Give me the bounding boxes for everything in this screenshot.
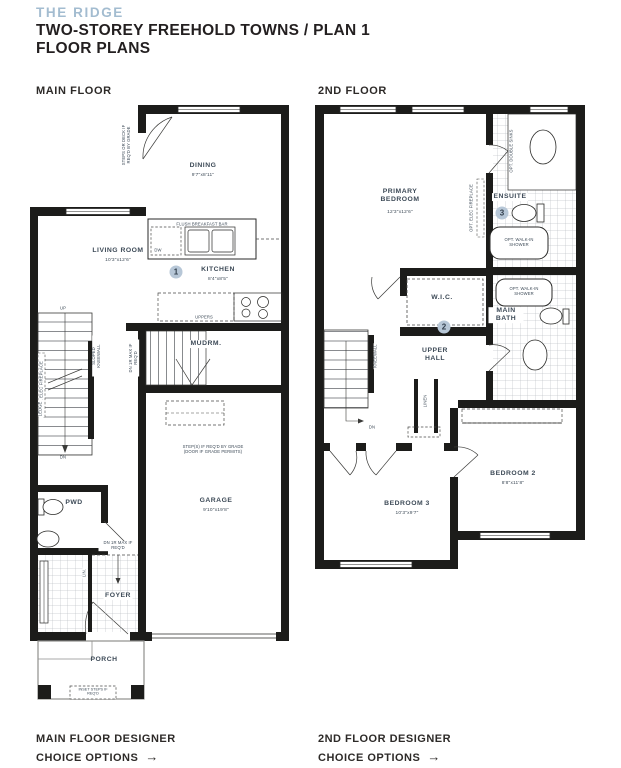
porch-post [38,685,51,699]
primary-bedroom-label: PRIMARY BEDROOM [367,188,433,204]
living-room-dims: 10'3"x12'6" [105,258,131,264]
main-bath-label: MAIN BATH [489,307,524,323]
stairs-dn-label: DN [367,426,376,431]
bedroom2-door [454,447,478,477]
bedroom3-dims: 10'3"x9'7" [396,511,419,517]
main-floor-options-line2: CHOICE OPTIONS→ [36,748,176,767]
garage-dims: 9'10"x19'8" [203,508,229,514]
dn-1r-foyer-note: DN 1R MAX IF REQ'D [99,541,138,551]
wic-label: W.I.C. [431,294,453,302]
toilet-tank [537,204,544,222]
porch-post [131,685,144,699]
toilet-bowl [43,500,63,515]
ensuite-sink [530,130,556,164]
option-marker-1: 1 [170,266,183,279]
main-bath-sink [523,340,547,370]
foyer-label: FOYER [104,592,133,600]
bedroom2-dims: 8'8"x11'8" [502,481,525,487]
inset-steps-note: INSET STEPS IF REQ'D [73,688,113,697]
front-door-opening [86,631,130,642]
mudroom-label: MUDRM. [189,340,223,348]
opt-walkin-shower-note-2: OPT. WALK-IN SHOWER [503,287,545,297]
main-floor-drawing [30,103,290,703]
living-room-label: LIVING ROOM [92,247,143,255]
linen-closet-label: LIN. [83,567,88,578]
arrow-right-icon: → [145,749,159,764]
porch-label: PORCH [90,656,117,664]
ensuite-label: ENSUITE [492,193,528,201]
kitchen-dims: 8'4"x8'5" [208,277,228,283]
main-floor-options-line1: MAIN FLOOR DESIGNER [36,732,176,748]
sloped-kneewall-note: SLOPED KNEEWALL [92,336,102,377]
kitchen-label: KITCHEN [201,266,235,274]
option-marker-3: 3 [496,207,509,220]
main-floor-section-label: MAIN FLOOR [36,85,112,97]
second-floor-options-link[interactable]: 2ND FLOOR DESIGNER CHOICE OPTIONS→ [318,732,451,767]
opt-double-sinks-note: OPT. DOUBLE SINKS [510,128,515,174]
page-subtitle: FLOOR PLANS [36,40,150,58]
second-floor-plan: PRIMARY BEDROOM 12'3"x12'6" OPT. DOUBLE … [310,103,590,583]
dn-arrow [358,419,364,424]
stairs-up-label: UP [58,307,67,312]
brand-name: THE RIDGE [36,5,124,20]
cooktop-burner [242,298,251,307]
dining-label: DINING [190,162,217,170]
toilet-bowl [512,205,536,222]
wic-enclosure [407,279,483,325]
steps-deck-note: STEPS OR DECK IF REQ'D BY GRADE [122,119,132,171]
second-floor-drawing [310,103,590,583]
kitchen-counter [158,293,282,321]
second-floor-options-text: CHOICE OPTIONS [318,752,420,764]
second-floor-options-line2: CHOICE OPTIONS→ [318,748,451,767]
floor-plan-page: { "header": { "brand": "THE RIDGE", "tit… [0,0,621,768]
main-stairs [38,313,94,455]
uppers-note: UPPERS [194,316,215,321]
kneewall-note: KNEEWALL [374,343,379,369]
primary-bedroom-dims: 12'3"x12'6" [387,210,413,216]
dishwasher-label: DW [154,249,161,254]
upper-hall-label: UPPER HALL [414,347,456,363]
window [66,107,240,215]
powder-label: PWD [65,499,82,507]
second-floor-options-line1: 2ND FLOOR DESIGNER [318,732,451,748]
garage-step [166,401,224,425]
opt-fireplace-note: OPT. ELEC FIREPLACE [470,179,475,238]
toilet-tank [563,309,569,324]
opt-fireplace-box [477,179,484,237]
upper-stairs [324,330,368,424]
garage-label: GARAGE [200,497,233,505]
dining-dims: 9'7"x8'11" [192,173,215,179]
option-marker-2: 2 [438,321,451,334]
bedroom3-door [330,451,396,475]
bedroom3-label: BEDROOM 3 [384,500,430,508]
page-title: TWO-STOREY FREEHOLD TOWNS / PLAN 1 [36,22,370,40]
toilet-bowl [540,308,562,324]
garage-door-opening [152,631,276,642]
stairs-dn-label: DN [58,456,67,461]
patio-door [143,117,172,159]
mudroom-steps [146,331,206,385]
dn-1r-note: DN 1R MAX IF REQ'D [129,340,139,377]
steps-if-reqd-note: STEP(S) IF REQ'D BY GRADE (DOOR IF GRADE… [181,445,246,455]
arrow-right-icon: → [427,749,441,764]
second-floor-section-label: 2ND FLOOR [318,85,387,97]
main-floor-plan: DINING 9'7"x8'11" STEPS OR DECK IF REQ'D… [30,103,290,703]
main-floor-options-link[interactable]: MAIN FLOOR DESIGNER CHOICE OPTIONS→ [36,732,176,767]
primary-bedroom-door [372,277,400,299]
powder-sink [37,531,59,547]
bedroom2-closet [462,409,562,423]
main-floor-options-text: CHOICE OPTIONS [36,752,138,764]
bedroom2-label: BEDROOM 2 [490,470,536,478]
linen-label: LINEN [424,393,429,409]
flush-breakfast-bar-note: FLUSH BREAKFAST BAR [176,223,227,228]
ledge-note: LEDGE [39,400,44,418]
opt-walkin-shower-note: OPT. WALK-IN SHOWER [498,238,540,248]
powder-fixtures [37,499,63,547]
